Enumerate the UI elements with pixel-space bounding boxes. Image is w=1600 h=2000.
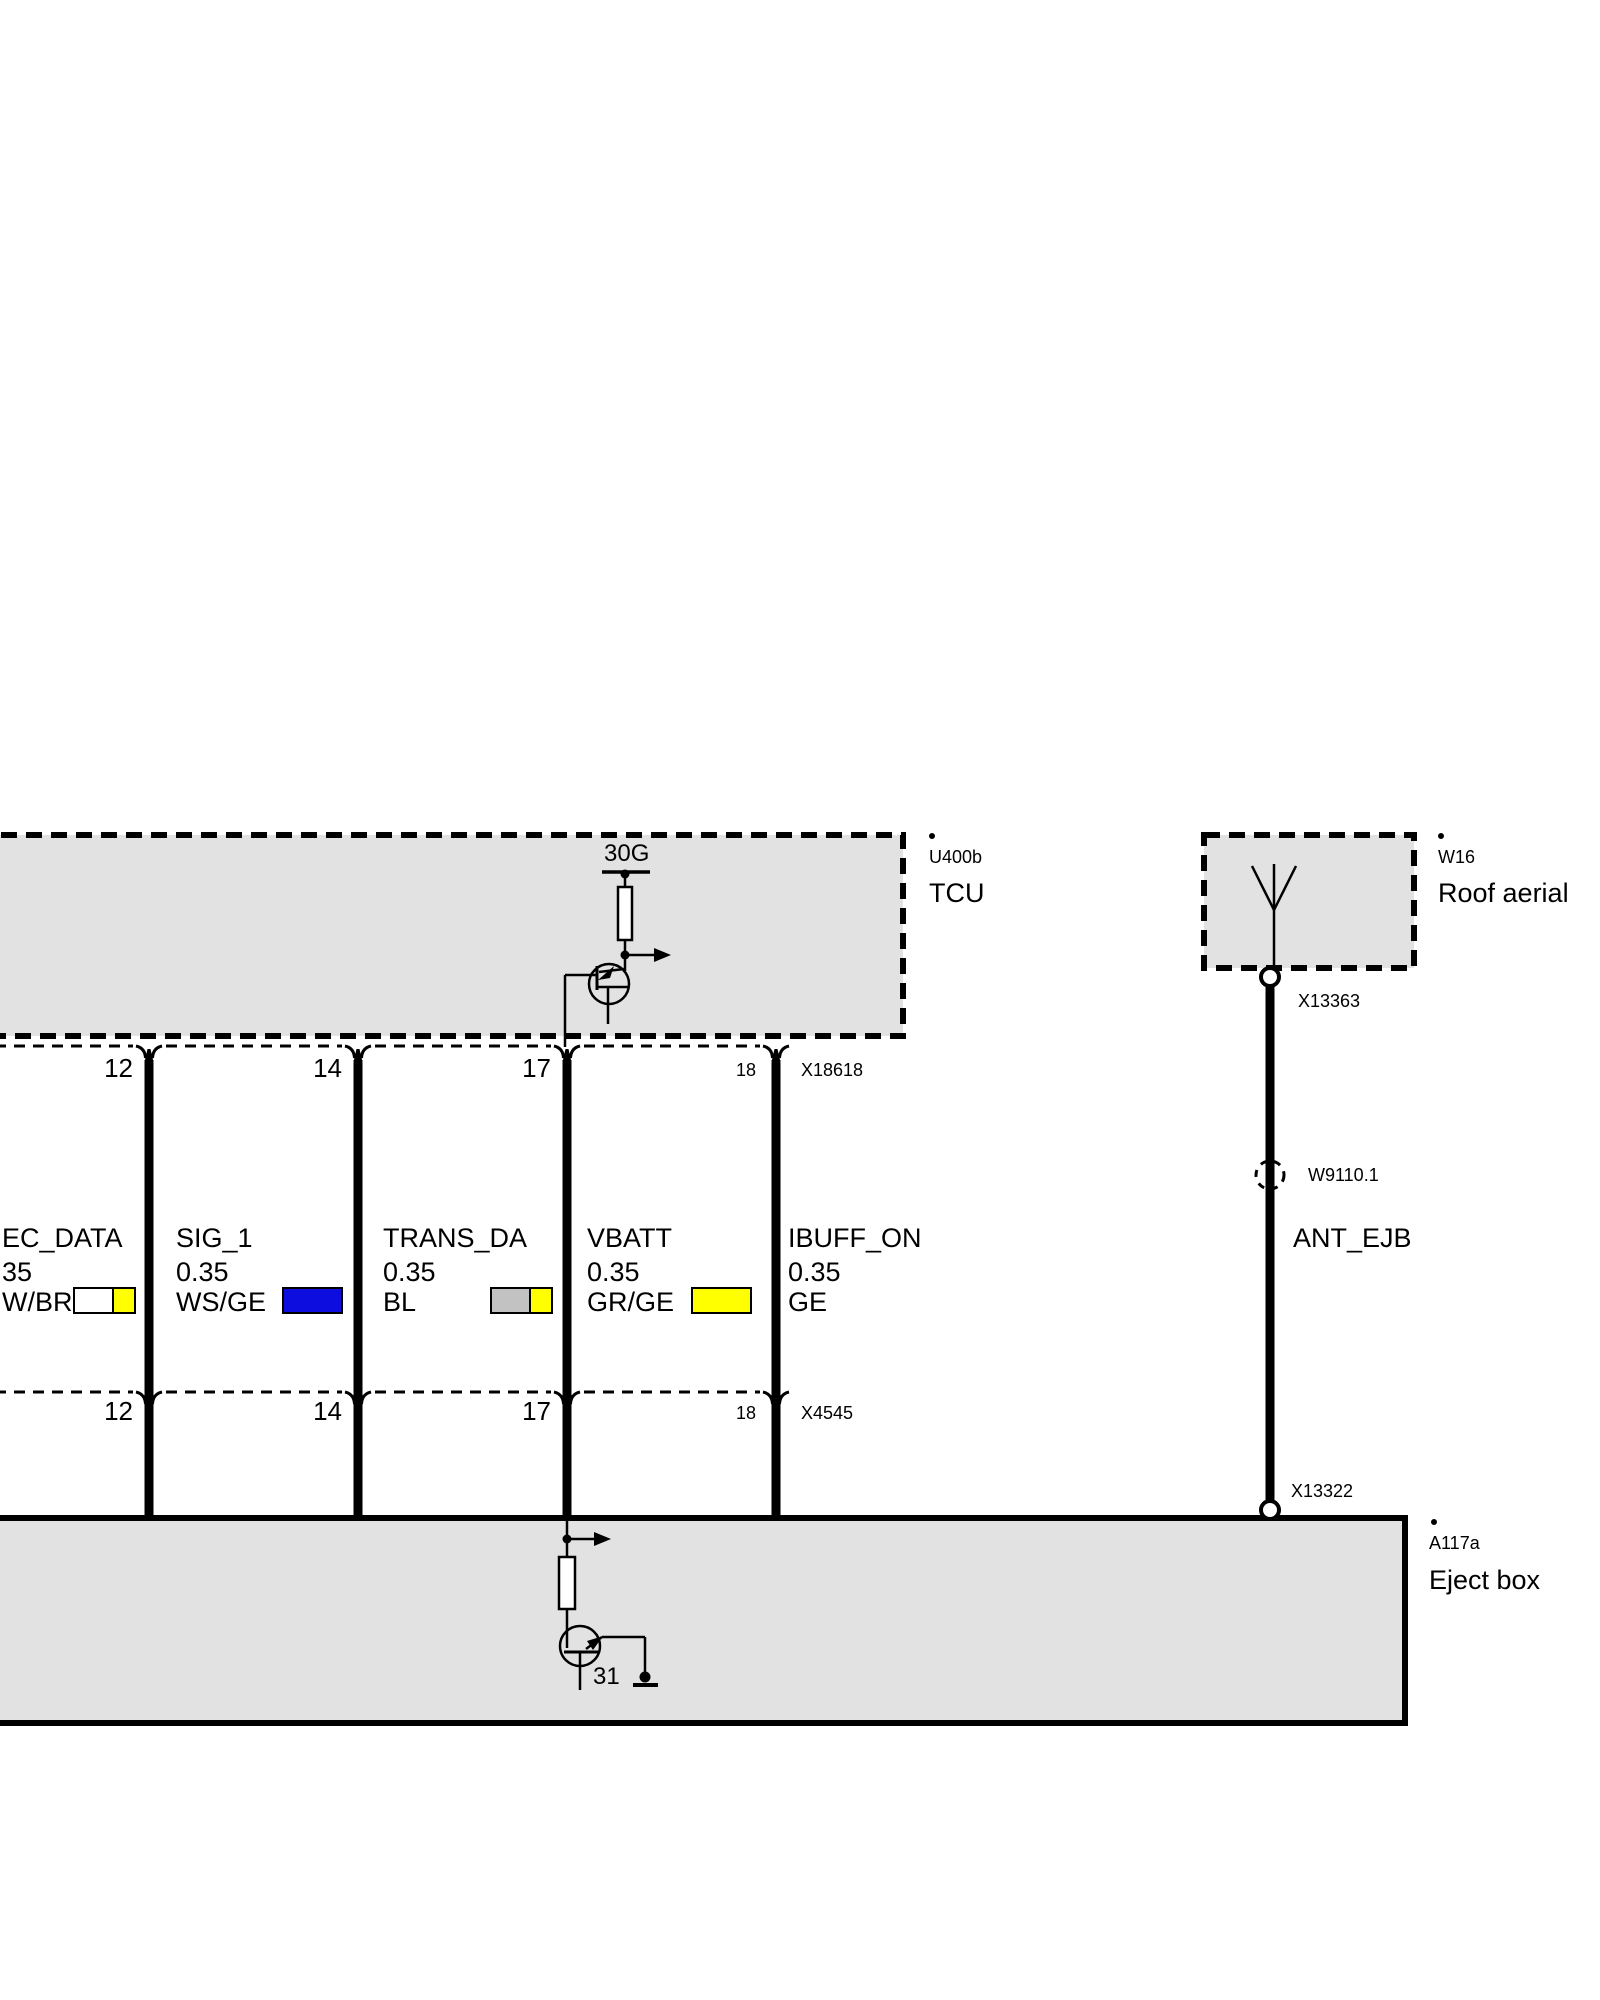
connector-x13322-icon — [1261, 1501, 1279, 1519]
chip-segment-white — [75, 1289, 112, 1312]
wire4-color-chip — [691, 1287, 752, 1314]
chip-segment-yellow — [693, 1289, 750, 1312]
x4545-pin-17: 17 — [481, 1398, 551, 1425]
wire3-signal: TRANS_DA — [383, 1224, 527, 1252]
connector-x13363-label: X13363 — [1298, 992, 1360, 1011]
aerial-ref-dot — [1438, 833, 1444, 839]
wire-18 — [772, 1060, 781, 1518]
roof-aerial-label: Roof aerial — [1438, 879, 1569, 907]
wire1-signal: EC_DATA — [2, 1224, 123, 1252]
chip-segment-yellow — [529, 1289, 551, 1312]
eject-box-code: A117a — [1429, 1534, 1480, 1553]
chip-segment-blue — [284, 1289, 341, 1312]
antenna-signal: ANT_EJB — [1293, 1224, 1412, 1252]
x18618-pin-12: 12 — [63, 1055, 133, 1082]
wire5-gauge: 0.35 — [788, 1258, 841, 1286]
tcu-label: TCU — [929, 879, 985, 907]
socket-patches — [133, 1041, 792, 1397]
wire-14 — [354, 1060, 363, 1518]
eject-box-label: Eject box — [1429, 1566, 1540, 1594]
wire2-signal: SIG_1 — [176, 1224, 253, 1252]
x18618-pin-14: 14 — [272, 1055, 342, 1082]
roof-aerial-code: W16 — [1438, 848, 1475, 867]
x4545-connector-label: X4545 — [801, 1404, 853, 1423]
connector-x13322-label: X13322 — [1291, 1482, 1353, 1501]
wire5-color-code: GE — [788, 1288, 827, 1316]
chip-segment-gray — [492, 1289, 529, 1312]
wire2-color-chip — [282, 1287, 343, 1314]
wiring-diagram-page: U400b TCU W16 Roof aerial A117a Eject bo… — [0, 0, 1600, 2000]
wire5-signal: IBUFF_ON — [788, 1224, 922, 1252]
wire4-gauge: 0.35 — [587, 1258, 640, 1286]
chip-segment-yellow — [112, 1289, 134, 1312]
wire2-gauge: 0.35 — [176, 1258, 229, 1286]
x18618-pin-18: 18 — [686, 1061, 756, 1080]
wire1-gauge: 35 — [2, 1258, 32, 1286]
tcu-ref-dot — [929, 833, 935, 839]
splice-w9110-label: W9110.1 — [1308, 1166, 1379, 1185]
x4545-pin-18: 18 — [686, 1404, 756, 1423]
roof-aerial-box — [1204, 835, 1414, 968]
wire1-color-chip — [73, 1287, 136, 1314]
eject-box — [0, 1518, 1405, 1723]
x18618-pin-17: 17 — [481, 1055, 551, 1082]
wire4-color-code: GR/GE — [587, 1288, 674, 1316]
wire2-color-code: WS/GE — [176, 1288, 266, 1316]
x4545-pin-14: 14 — [272, 1398, 342, 1425]
x4545-pin-12: 12 — [63, 1398, 133, 1425]
wire3-color-chip — [490, 1287, 553, 1314]
tcu-power-rail-label: 30G — [604, 841, 649, 866]
tcu-rail-junction-dot — [621, 870, 630, 879]
ejectbox-ref-dot — [1431, 1519, 1437, 1525]
wire3-gauge: 0.35 — [383, 1258, 436, 1286]
tcu-code: U400b — [929, 848, 982, 867]
ground-terminal-label: 31 — [593, 1664, 620, 1689]
tcu-box — [0, 835, 903, 1036]
wire1-color-code: W/BR — [2, 1288, 73, 1316]
ejectbox-node-dot — [563, 1535, 572, 1544]
x18618-connector-label: X18618 — [801, 1061, 863, 1080]
wire4-signal: VBATT — [587, 1224, 672, 1252]
wire-12 — [145, 1060, 154, 1518]
tcu-node-dot — [621, 951, 630, 960]
connector-x13363-icon — [1261, 968, 1279, 986]
wire-antenna — [1266, 986, 1275, 1503]
wire3-color-code: BL — [383, 1288, 416, 1316]
wire-17 — [563, 1060, 572, 1518]
ground-terminal-dot — [640, 1672, 651, 1683]
